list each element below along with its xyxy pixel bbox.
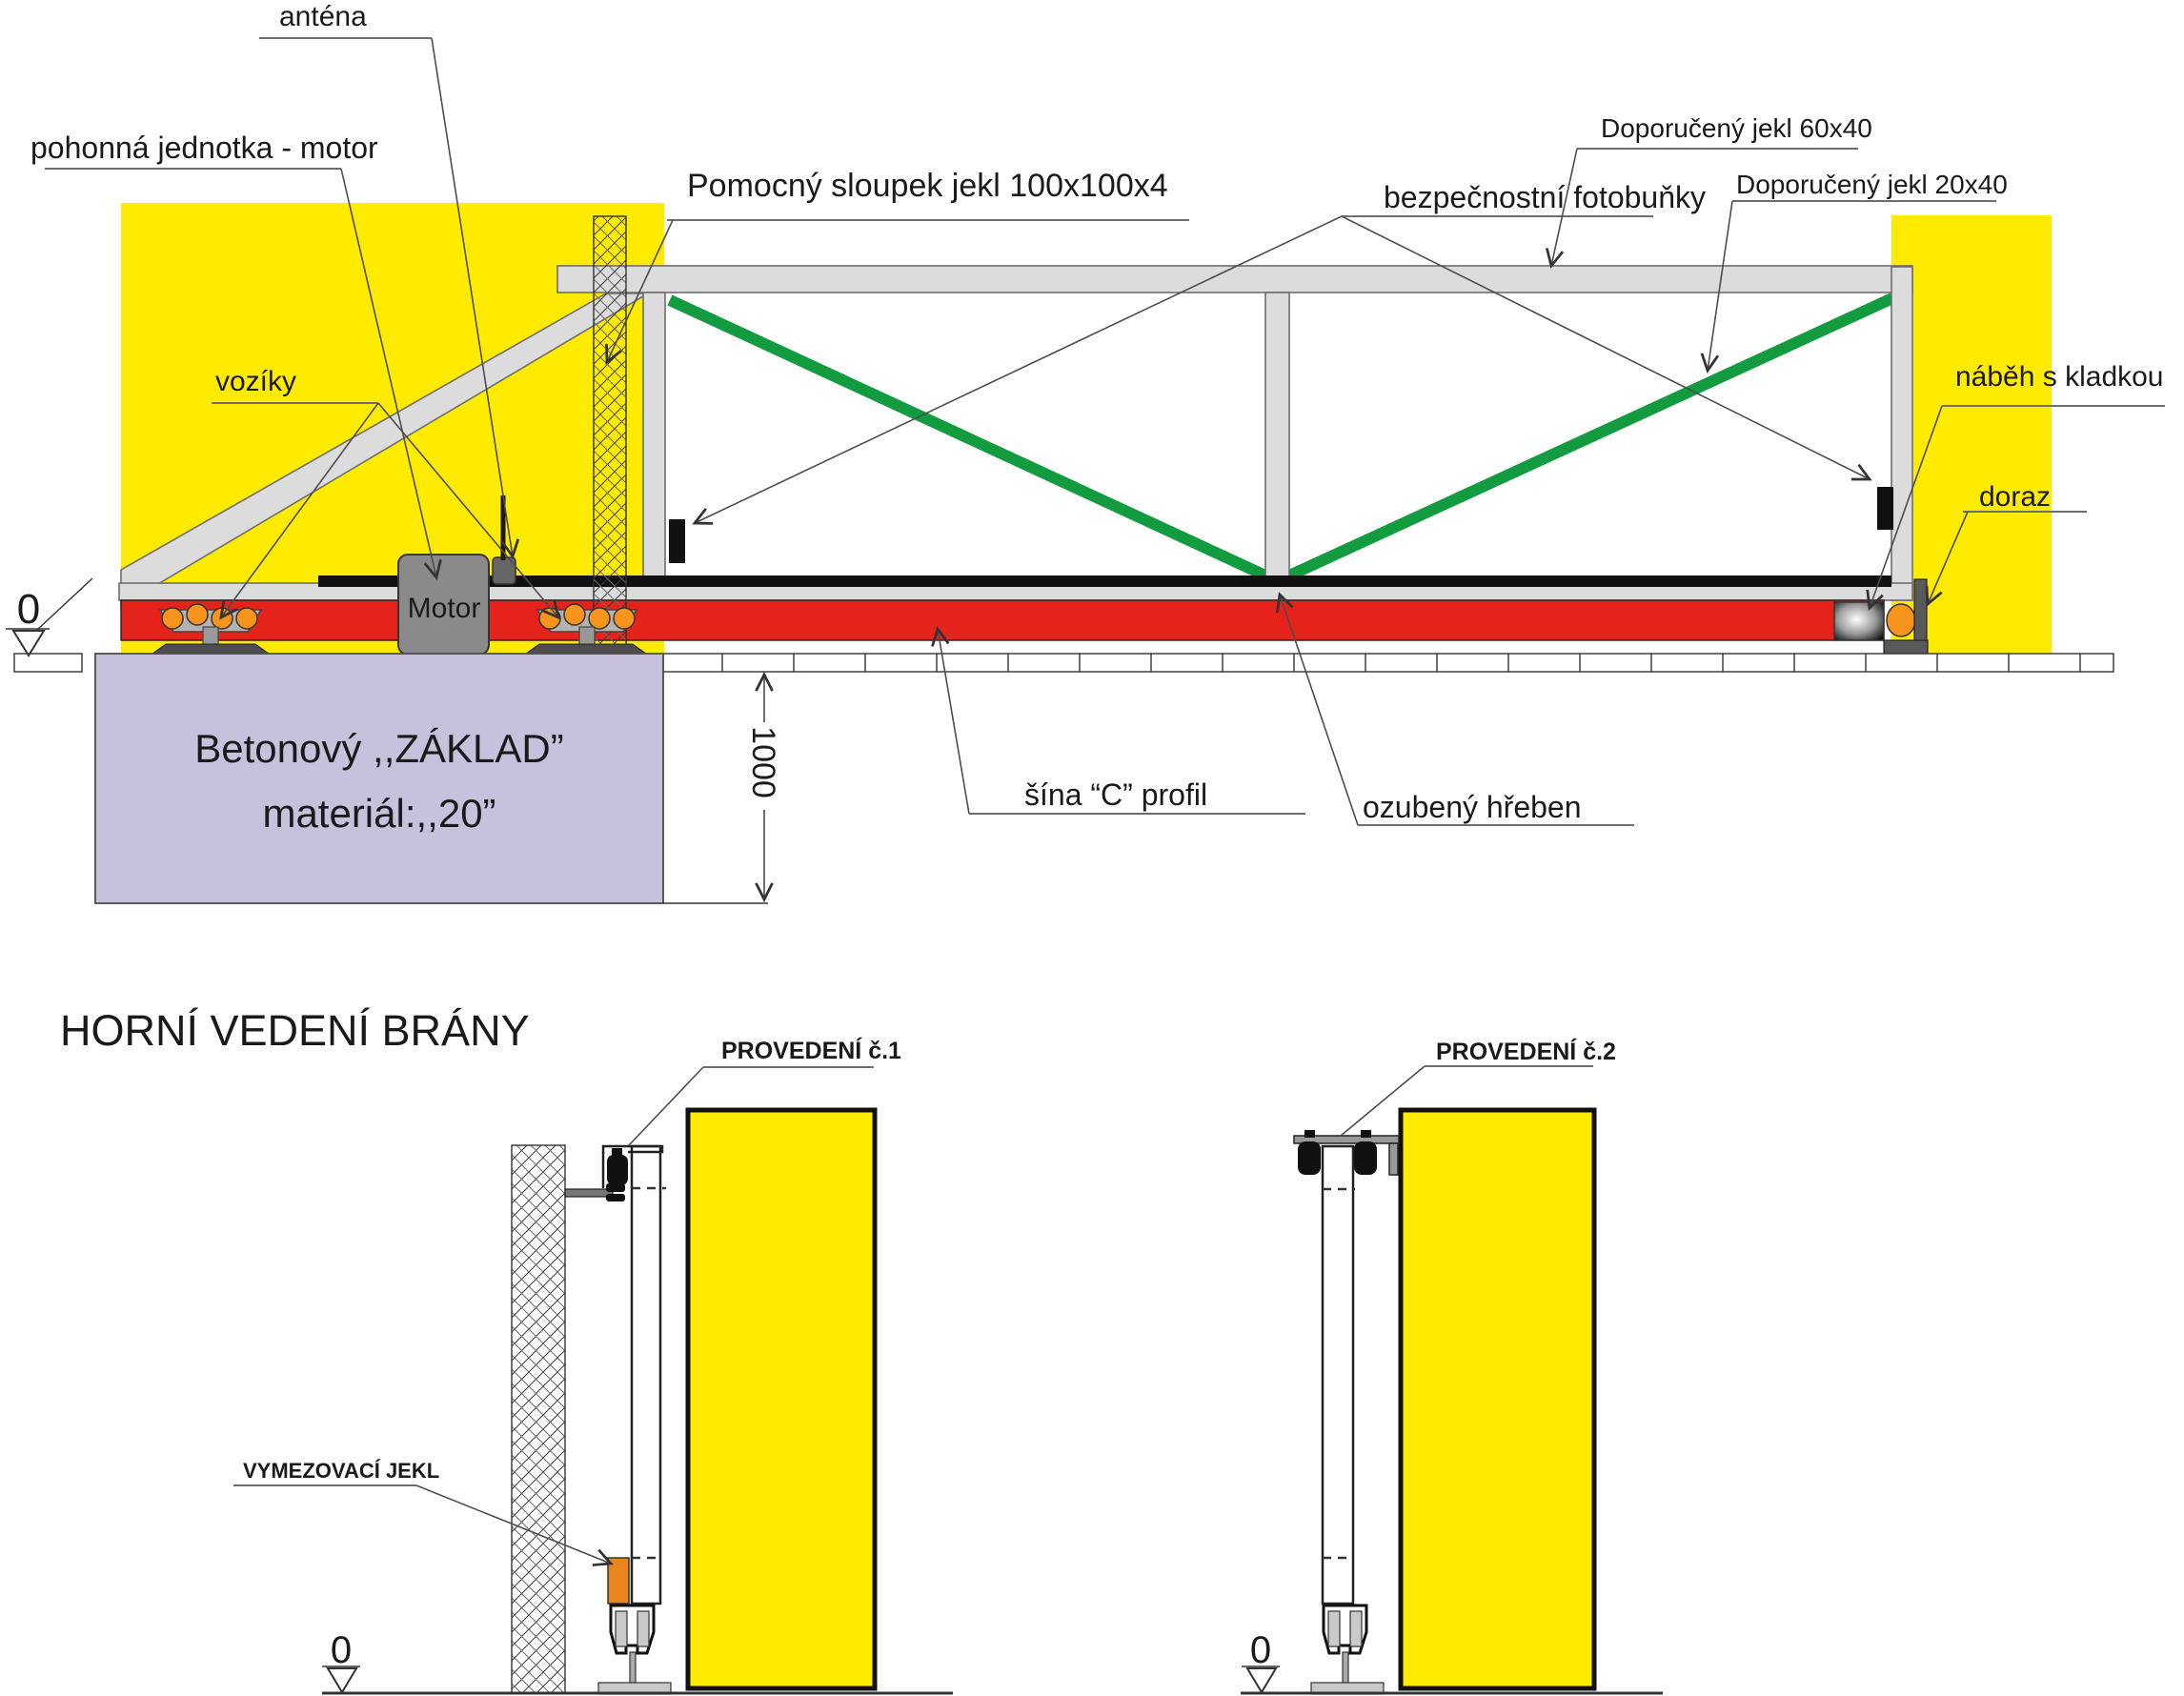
label-sina: šína “C” profil (1024, 777, 1207, 812)
spacer-jekl-orange (608, 1558, 629, 1604)
photocell-right (1877, 487, 1893, 530)
label-ozubeny: ozubený hřeben (1363, 790, 1582, 824)
concrete-foundation (95, 654, 663, 903)
label-fotobunky: bezpečnostní fotobuňky (1384, 180, 1706, 214)
dimension-1000-text: 1000 (745, 726, 781, 798)
bottom-trolley-1 (598, 1605, 671, 1694)
toothed-rack (318, 575, 1891, 587)
gate-right-member (1891, 267, 1912, 600)
gate-panel-2 (1401, 1110, 1594, 1688)
bottom-trolley-2 (1311, 1605, 1384, 1694)
label-provedeni-2: PROVEDENÍ č.2 (1436, 1038, 1616, 1065)
label-jekl60: Doporučený jekl 60x40 (1601, 113, 1872, 143)
motor-label: Motor (408, 593, 481, 624)
approach-ramp (1834, 602, 1884, 640)
foundation-text-line2: materiál:,,20” (262, 791, 495, 836)
datum-zero-1-text: 0 (331, 1629, 352, 1671)
foundation-text-line1: Betonový ,,ZÁKLAD” (194, 726, 564, 771)
label-pomocny: Pomocný sloupek jekl 100x100x4 (687, 168, 1168, 204)
label-pohonna: pohonná jednotka - motor (30, 131, 378, 165)
label-nabeh: náběh s kladkou (1955, 361, 2164, 393)
label-jekl20: Doporučený jekl 20x40 (1736, 170, 2008, 199)
detail-provedeni-1: 0 PROVEDENÍ č.1 VYMEZOVACÍ JEKL (233, 1037, 953, 1694)
gate-middle-member (1265, 293, 1289, 583)
datum-zero-2-text: 0 (1250, 1629, 1271, 1671)
wall-hatched-1 (512, 1145, 565, 1693)
c-rail-red (121, 600, 1884, 640)
gate-left-member (643, 293, 665, 583)
end-pulley (1887, 604, 1915, 636)
drawing-canvas: Motor Betonový ,,ZÁKLAD” materiál:,,20” … (0, 0, 2184, 1696)
gate-top-rail (557, 266, 1912, 293)
gate-panel-1 (688, 1110, 875, 1688)
photocell-left (669, 519, 685, 563)
label-vymezovaci: VYMEZOVACÍ JEKL (243, 1459, 439, 1483)
label-doraz: doraz (1979, 481, 2051, 513)
dimension-1000: 1000 (663, 675, 781, 903)
label-antena: anténa (279, 1, 367, 32)
label-provedeni-1: PROVEDENÍ č.1 (721, 1037, 901, 1064)
datum-zero-main: 0 (6, 578, 92, 656)
guide-post-2 (1323, 1146, 1353, 1604)
auxiliary-post-hatched (594, 216, 626, 654)
label-voziky: vozíky (215, 366, 296, 397)
section-title: HORNÍ VEDENÍ BRÁNY (60, 1006, 530, 1055)
gate-technical-drawing: Motor Betonový ,,ZÁKLAD” materiál:,,20” … (0, 0, 2184, 1696)
detail-provedeni-2: 0 PROVEDENÍ č.2 (1241, 1038, 1663, 1694)
datum-zero-main-text: 0 (17, 586, 40, 633)
datum-zero-1: 0 (322, 1629, 360, 1692)
datum-zero-2: 0 (1242, 1629, 1280, 1692)
guide-post-1 (632, 1146, 660, 1604)
